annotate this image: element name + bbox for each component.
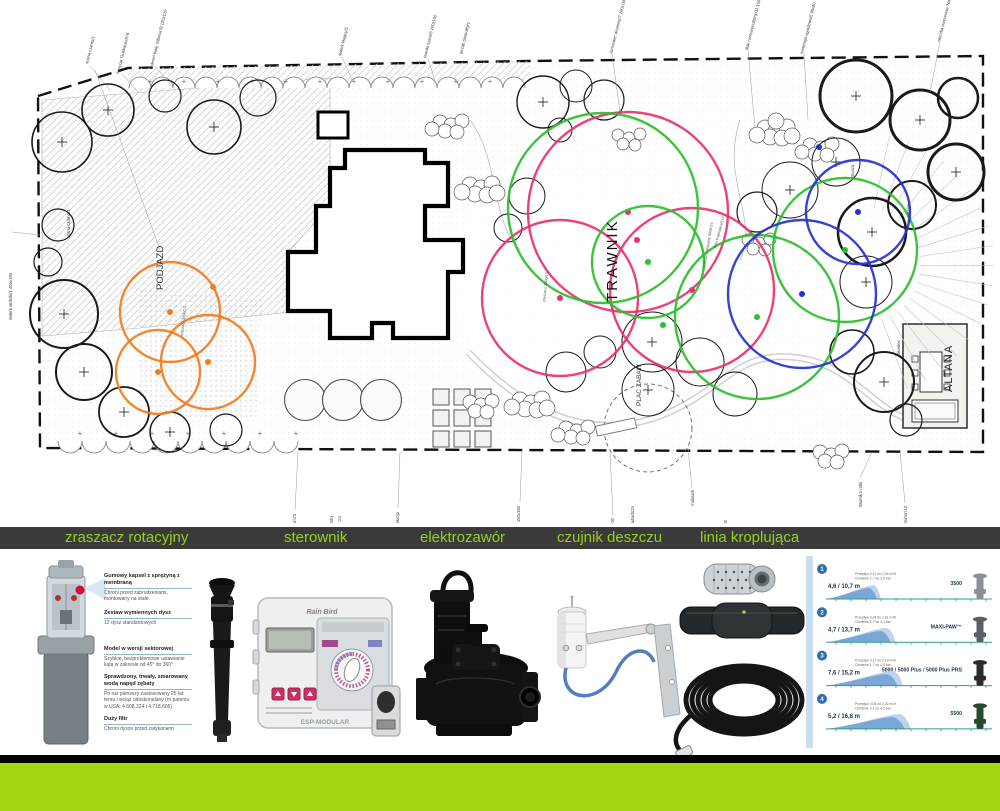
paving-circle	[361, 380, 402, 421]
shrub	[634, 128, 646, 140]
emitter-dot	[721, 579, 723, 581]
sprinkler-range-chart: 1Przepływ 0,12 do 1,04 m³/hCiśnienie 1,7…	[817, 564, 992, 731]
emitter-dot	[733, 571, 735, 573]
shrub	[425, 122, 439, 136]
chart-side-strip	[806, 556, 813, 748]
plan-label: sosna czarna/1	[66, 209, 71, 238]
sprinkler-thumb	[977, 664, 984, 686]
plan-label: poziomka w sadach/24	[630, 505, 635, 523]
plan-label: prowadzony na wys. 180 cm	[337, 515, 342, 523]
shrub	[795, 145, 809, 159]
plan-label: żywopłot grabowy (6 szt. na mb)	[329, 515, 334, 523]
plan-label: grusza	[850, 164, 855, 178]
pressure-note: Ciśnienie 1,7 do 3,8 bar	[855, 577, 892, 581]
sprinkler-thumb	[977, 707, 984, 729]
emitter-dot	[741, 571, 743, 573]
plan-label: jałowiec	[896, 339, 901, 357]
controller-image: Rain Bird ESP-MODULAR	[253, 598, 400, 736]
shrub	[480, 405, 494, 419]
legend-item-valve: elektrozawór	[420, 527, 505, 549]
pipe-coil	[686, 666, 802, 734]
controller-model: ESP-MODULAR	[301, 719, 350, 726]
rotor-annotation-desc: Chroni przed zabrudzeniami, montowany na…	[104, 590, 192, 603]
rotor-annotation: Sprawdzony, trwały, smarowany wodą napęd…	[104, 674, 192, 710]
emitter-dot	[729, 579, 731, 581]
sprinkler-head-dot	[205, 359, 211, 365]
paving-grid	[433, 389, 491, 447]
shrub	[539, 400, 555, 416]
plan-label: modrzew	[906, 203, 911, 222]
plan-label: borówka amerykańska/3 100x100	[610, 517, 615, 523]
shrub	[629, 139, 641, 151]
sprinkler-thumb	[977, 577, 984, 599]
sprinkler-head-dot	[754, 314, 760, 320]
paving-circle	[285, 380, 326, 421]
sprinkler-head-dot	[155, 369, 161, 375]
model-label: 5500	[950, 711, 962, 717]
legend-item-rotary-sprinkler: zraszacz rotacyjny	[65, 527, 188, 549]
bed-plus-mark: +	[78, 429, 83, 438]
legend-bar: zraszacz rotacyjny sterownik elektrozawó…	[0, 527, 1000, 549]
garden-plan: ++++++++++++++++++TRAWNIKPODJAZDALTANAPL…	[0, 0, 1000, 523]
shrub	[551, 428, 565, 442]
rotor-annotation-desc: Po raz pierwszy zastosowany 25 lat temu …	[104, 691, 192, 711]
pressure-note: Ciśnienie 1,7 do 4,5 bar	[855, 663, 892, 667]
bed-plus-mark: +	[258, 429, 263, 438]
divider-strip	[0, 755, 1000, 763]
emitter-dot	[717, 571, 719, 573]
emitter-dot	[733, 587, 735, 589]
sprinkler-thumb	[974, 719, 986, 724]
paving-circle	[323, 380, 364, 421]
bed-plus-mark: +	[352, 77, 357, 86]
shrub	[768, 113, 784, 129]
sprinkler-head-dot	[842, 247, 848, 253]
legend-item-controller: sterownik	[284, 527, 347, 549]
pressure-note: Ciśnienie 2,1 do 4,2 bar	[855, 706, 892, 710]
callout-wedge	[84, 578, 106, 600]
rotor-cutaway-image	[38, 560, 106, 744]
plan-label: róża pomarszczona/8 150x150	[516, 505, 521, 523]
emitter-dot	[737, 579, 739, 581]
bed-plus-mark: +	[148, 77, 153, 86]
bed-plus-mark: +	[182, 77, 187, 86]
rotor-annotation: Gumowy kapsel z sprężyną z membraną Chro…	[104, 573, 192, 603]
range-label: 4,7 / 13,7 m	[828, 627, 860, 633]
range-label: 4,6 / 10,7 m	[828, 584, 860, 590]
legend-item-rain-sensor: czujnik deszczu	[557, 527, 662, 549]
bed-plus-mark: +	[488, 77, 493, 86]
rotor-annotation-desc: Szybkie, bezproblemowe ustawianie kąta w…	[104, 656, 192, 669]
bed-plus-mark: +	[318, 77, 323, 86]
shrub	[450, 125, 464, 139]
title-bar: PROJEKT SYSTEMU NAWADNIAJĄCEGO główne el…	[0, 763, 1000, 811]
sprinkler-thumb	[974, 589, 986, 594]
sprinkler-thumb	[974, 632, 986, 637]
emitter-dot	[745, 579, 747, 581]
sprinkler-head-dot	[557, 295, 563, 301]
flow-note: Przepływ 0,34 do 1,81 m³/h	[855, 615, 896, 619]
bed-plus-mark: +	[284, 77, 289, 86]
bed-plus-mark: +	[216, 77, 221, 86]
rotor-annotation-desc: 12 dysz standardowych	[104, 620, 192, 627]
sprinkler-head-dot	[855, 209, 861, 215]
emitter-dot	[725, 571, 727, 573]
shrub	[749, 127, 765, 143]
plan-label: drewniane obrzeże z drewna o przekroju	[395, 511, 400, 523]
shrub	[830, 455, 844, 469]
rotor-annotation-title: Sprawdzony, trwały, smarowany wodą napęd…	[104, 674, 192, 690]
legend-item-drip-line: linia kroplująca	[700, 527, 799, 549]
pressure-note: Ciśnienie 1,7 do 4,1 bar	[855, 620, 892, 624]
bed-plus-mark: +	[454, 77, 459, 86]
plan-label: dereń biały 'Elegantissima'/12	[903, 505, 908, 523]
emitter-dot	[725, 587, 727, 589]
shrub	[504, 399, 520, 415]
sprinkler-head-dot	[816, 144, 822, 150]
shrub	[489, 185, 505, 201]
plan-label: malina/5	[690, 489, 695, 505]
shrub	[454, 184, 470, 200]
bed-plus-mark: +	[420, 77, 425, 86]
sprinkler-thumb	[974, 676, 986, 681]
model-label: 3500	[950, 581, 962, 587]
shrub	[747, 243, 759, 255]
shrub	[820, 148, 834, 162]
valve-image	[416, 573, 540, 736]
flow-note: Przepływ 0,17 do 2,19 m³/h	[855, 659, 896, 663]
flow-note: Przepływ 0,05 do 2,22 m³/h	[855, 702, 896, 706]
sprinkler-thumb	[977, 620, 984, 642]
rotor-annotation-desc: Chroni dysze przed zatykaniem	[104, 726, 192, 733]
rotor-annotation-title: Model w wersji sektorowej	[104, 646, 192, 655]
poster-page: ++++++++++++++++++TRAWNIKPODJAZDALTANAPL…	[0, 0, 1000, 811]
bed-plus-mark: +	[294, 429, 299, 438]
flow-note: Przepływ 0,12 do 1,04 m³/h	[855, 572, 896, 576]
sprinkler-head-dot	[634, 237, 640, 243]
rain-sensor-image	[558, 596, 680, 718]
shrub	[617, 138, 629, 150]
range-label: 5,2 / 16,8 m	[828, 714, 860, 720]
emitter-dot	[741, 587, 743, 589]
rotor-annotation-title: Zestaw wymiennych dysz	[104, 610, 192, 619]
plan-label: TRAWNIK	[604, 219, 621, 302]
rotor-annotation: Duży filtr Chroni dysze przed zatykaniem	[104, 716, 192, 732]
rotary-sprinkler-image	[209, 578, 235, 742]
rotor-annotation: Zestaw wymiennych dysz 12 dysz standardo…	[104, 610, 192, 626]
plan-label: PLAC ZABAW	[636, 363, 643, 406]
garage	[318, 112, 348, 138]
rotor-annotation-title: Gumowy kapsel z sprężyną z membraną	[104, 573, 192, 589]
bed-plus-mark: +	[386, 77, 391, 86]
emitter-dot	[713, 579, 715, 581]
emitter-dot	[717, 587, 719, 589]
sprinkler-head-dot	[660, 322, 666, 328]
plan-label: PODJAZD	[155, 246, 166, 290]
bed-plus-mark: +	[222, 429, 227, 438]
shrub-bed	[138, 288, 262, 420]
plan-label: ALTANA	[943, 345, 955, 392]
plan-label: świerk serbski/1 400x150	[8, 272, 13, 320]
model-label: MAXI-PAW™	[931, 624, 962, 630]
sprinkler-head-dot	[799, 291, 805, 297]
range-label: 7,6 / 15,2 m	[828, 671, 860, 677]
shrub	[576, 431, 590, 445]
drip-line-image	[675, 564, 804, 755]
emitter-dot	[749, 587, 751, 589]
sprinkler-head-dot	[645, 259, 651, 265]
controller-brand: Rain Bird	[306, 609, 338, 616]
shrub	[784, 128, 800, 144]
plan-label: trawnik z rolki	[858, 482, 863, 507]
rotor-annotation-title: Duży filtr	[104, 716, 192, 725]
plan-label: roślinność przekładana 'Globosum'/3	[292, 513, 297, 523]
sprinkler-head-dot	[210, 284, 216, 290]
rotor-annotation: Model w wersji sektorowej Szybkie, bezpr…	[104, 646, 192, 669]
sprinkler-head-dot	[167, 309, 173, 315]
